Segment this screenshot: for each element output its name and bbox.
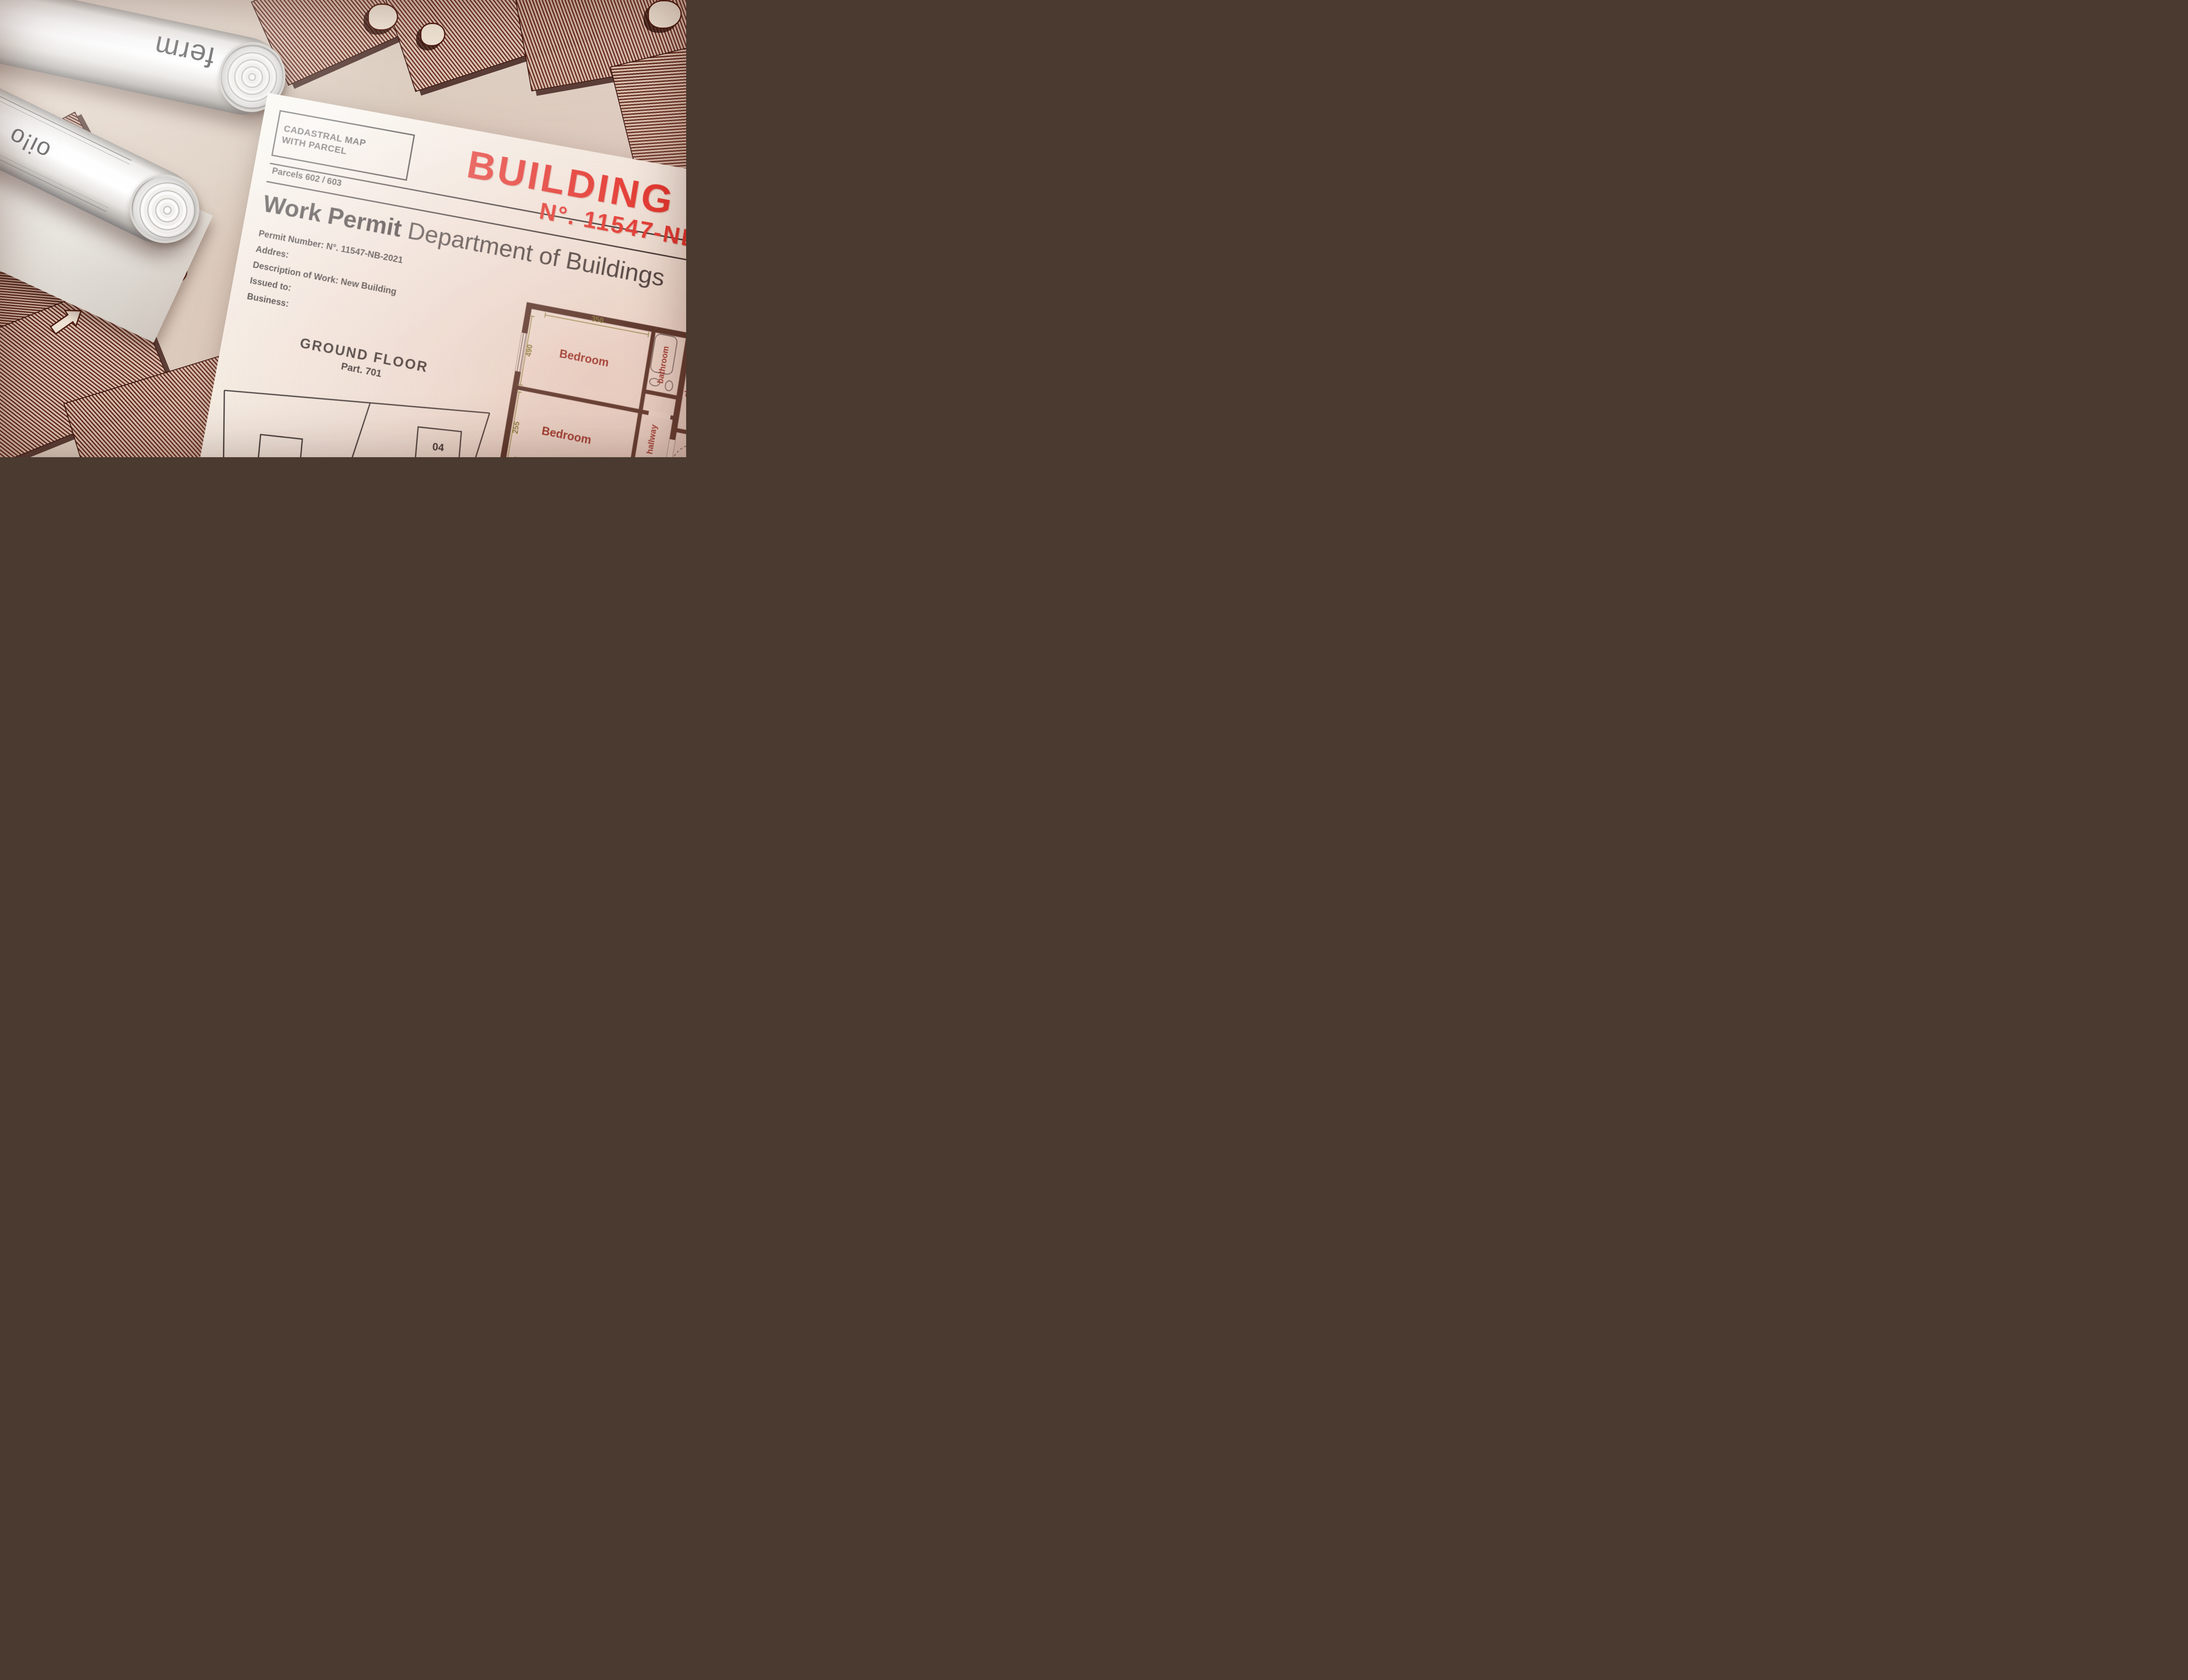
room-label-hallway-l: hallway	[645, 424, 659, 455]
building-permit-sheet: CADASTRAL MAP WITH PARCEL Parcels 602 / …	[160, 93, 686, 457]
room-label-bathroom-l: bathroom	[656, 345, 671, 384]
blueprint-roll-back: ferm	[0, 0, 288, 122]
parcel-buildings: 04 04 03 03 01 Part. 603 02 02 01 Part. …	[199, 406, 461, 457]
roll-handwriting: ferm	[151, 29, 217, 74]
parcel-mark-04b: 04	[432, 441, 445, 454]
parcel-mark-04a: 04	[273, 456, 285, 457]
dim-255-left: 255	[512, 421, 521, 434]
room-label-bedroom-l1: Bedroom	[558, 347, 610, 369]
room-label-bedroom-l2: Bedroom	[541, 424, 593, 447]
dim-490: 490	[525, 344, 534, 357]
door-openings	[519, 374, 686, 457]
photo-scene: ferm oi!o 19 CADASTRAL MAP WITH PARCEL P…	[0, 0, 686, 457]
dim-350: 350	[591, 315, 604, 325]
